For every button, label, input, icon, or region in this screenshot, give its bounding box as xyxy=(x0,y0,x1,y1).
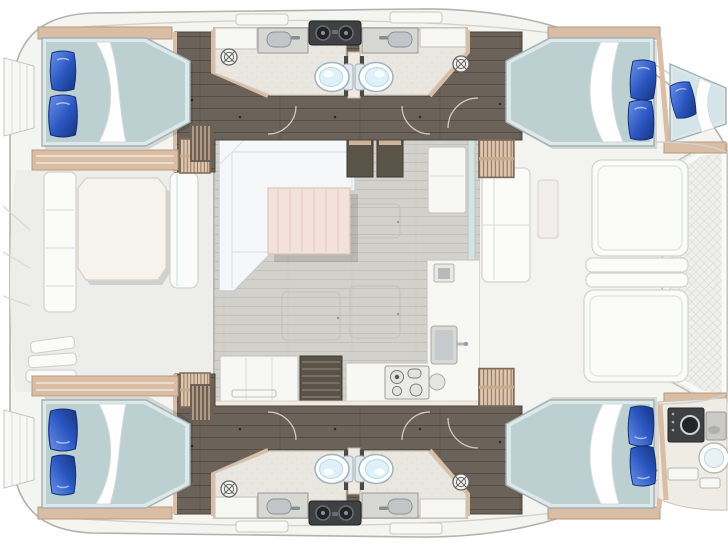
utility-locker xyxy=(706,412,726,440)
deck-hatch xyxy=(236,14,288,25)
deck-hatch xyxy=(236,521,288,532)
sun-cushion-aft xyxy=(584,290,688,382)
salon-aft-wall xyxy=(214,401,481,406)
burner xyxy=(392,386,401,395)
deck-hatch xyxy=(390,523,442,534)
cockpit-side-table xyxy=(538,180,558,238)
cockpit-bench-left xyxy=(44,172,76,312)
cockpit-bench-right xyxy=(170,172,198,288)
starboard-forepeak-utility xyxy=(658,398,728,510)
burner xyxy=(410,384,422,396)
transom-step-port xyxy=(4,58,34,136)
salon-front-window xyxy=(468,139,475,265)
step xyxy=(28,353,77,368)
transom-step-starboard xyxy=(4,410,34,488)
cockpit-steps xyxy=(26,336,77,382)
foredeck xyxy=(480,128,727,402)
aft-cockpit xyxy=(3,170,216,392)
steps-block xyxy=(300,356,342,402)
center-cushion xyxy=(586,258,688,272)
galley-sink-basin xyxy=(435,330,453,360)
refrigerator xyxy=(428,147,466,213)
stove xyxy=(385,366,429,399)
floorplan-scene: Catamaran yacht interior layout — top-do… xyxy=(0,0,728,546)
floorplan-canvas: Catamaran yacht interior layout — top-do… xyxy=(0,0,728,546)
prep-sink-basin xyxy=(438,268,450,279)
sun-cushion-forward xyxy=(592,160,688,256)
deck-hatch xyxy=(390,12,442,23)
cockpit-dining-table xyxy=(78,178,166,280)
utility-shelf xyxy=(700,478,720,488)
galley-faucet-knob xyxy=(464,342,468,346)
locker-latch xyxy=(708,426,720,434)
burner-oval xyxy=(408,369,421,378)
stove-top xyxy=(385,366,429,399)
utility-sink-basin xyxy=(705,449,724,468)
storage-steps xyxy=(300,356,342,402)
utility-shelf xyxy=(668,468,698,480)
salon xyxy=(214,132,481,406)
burner-center xyxy=(395,375,399,379)
center-cushion xyxy=(586,273,688,287)
washer-door xyxy=(681,416,699,434)
round-sink xyxy=(429,374,445,390)
